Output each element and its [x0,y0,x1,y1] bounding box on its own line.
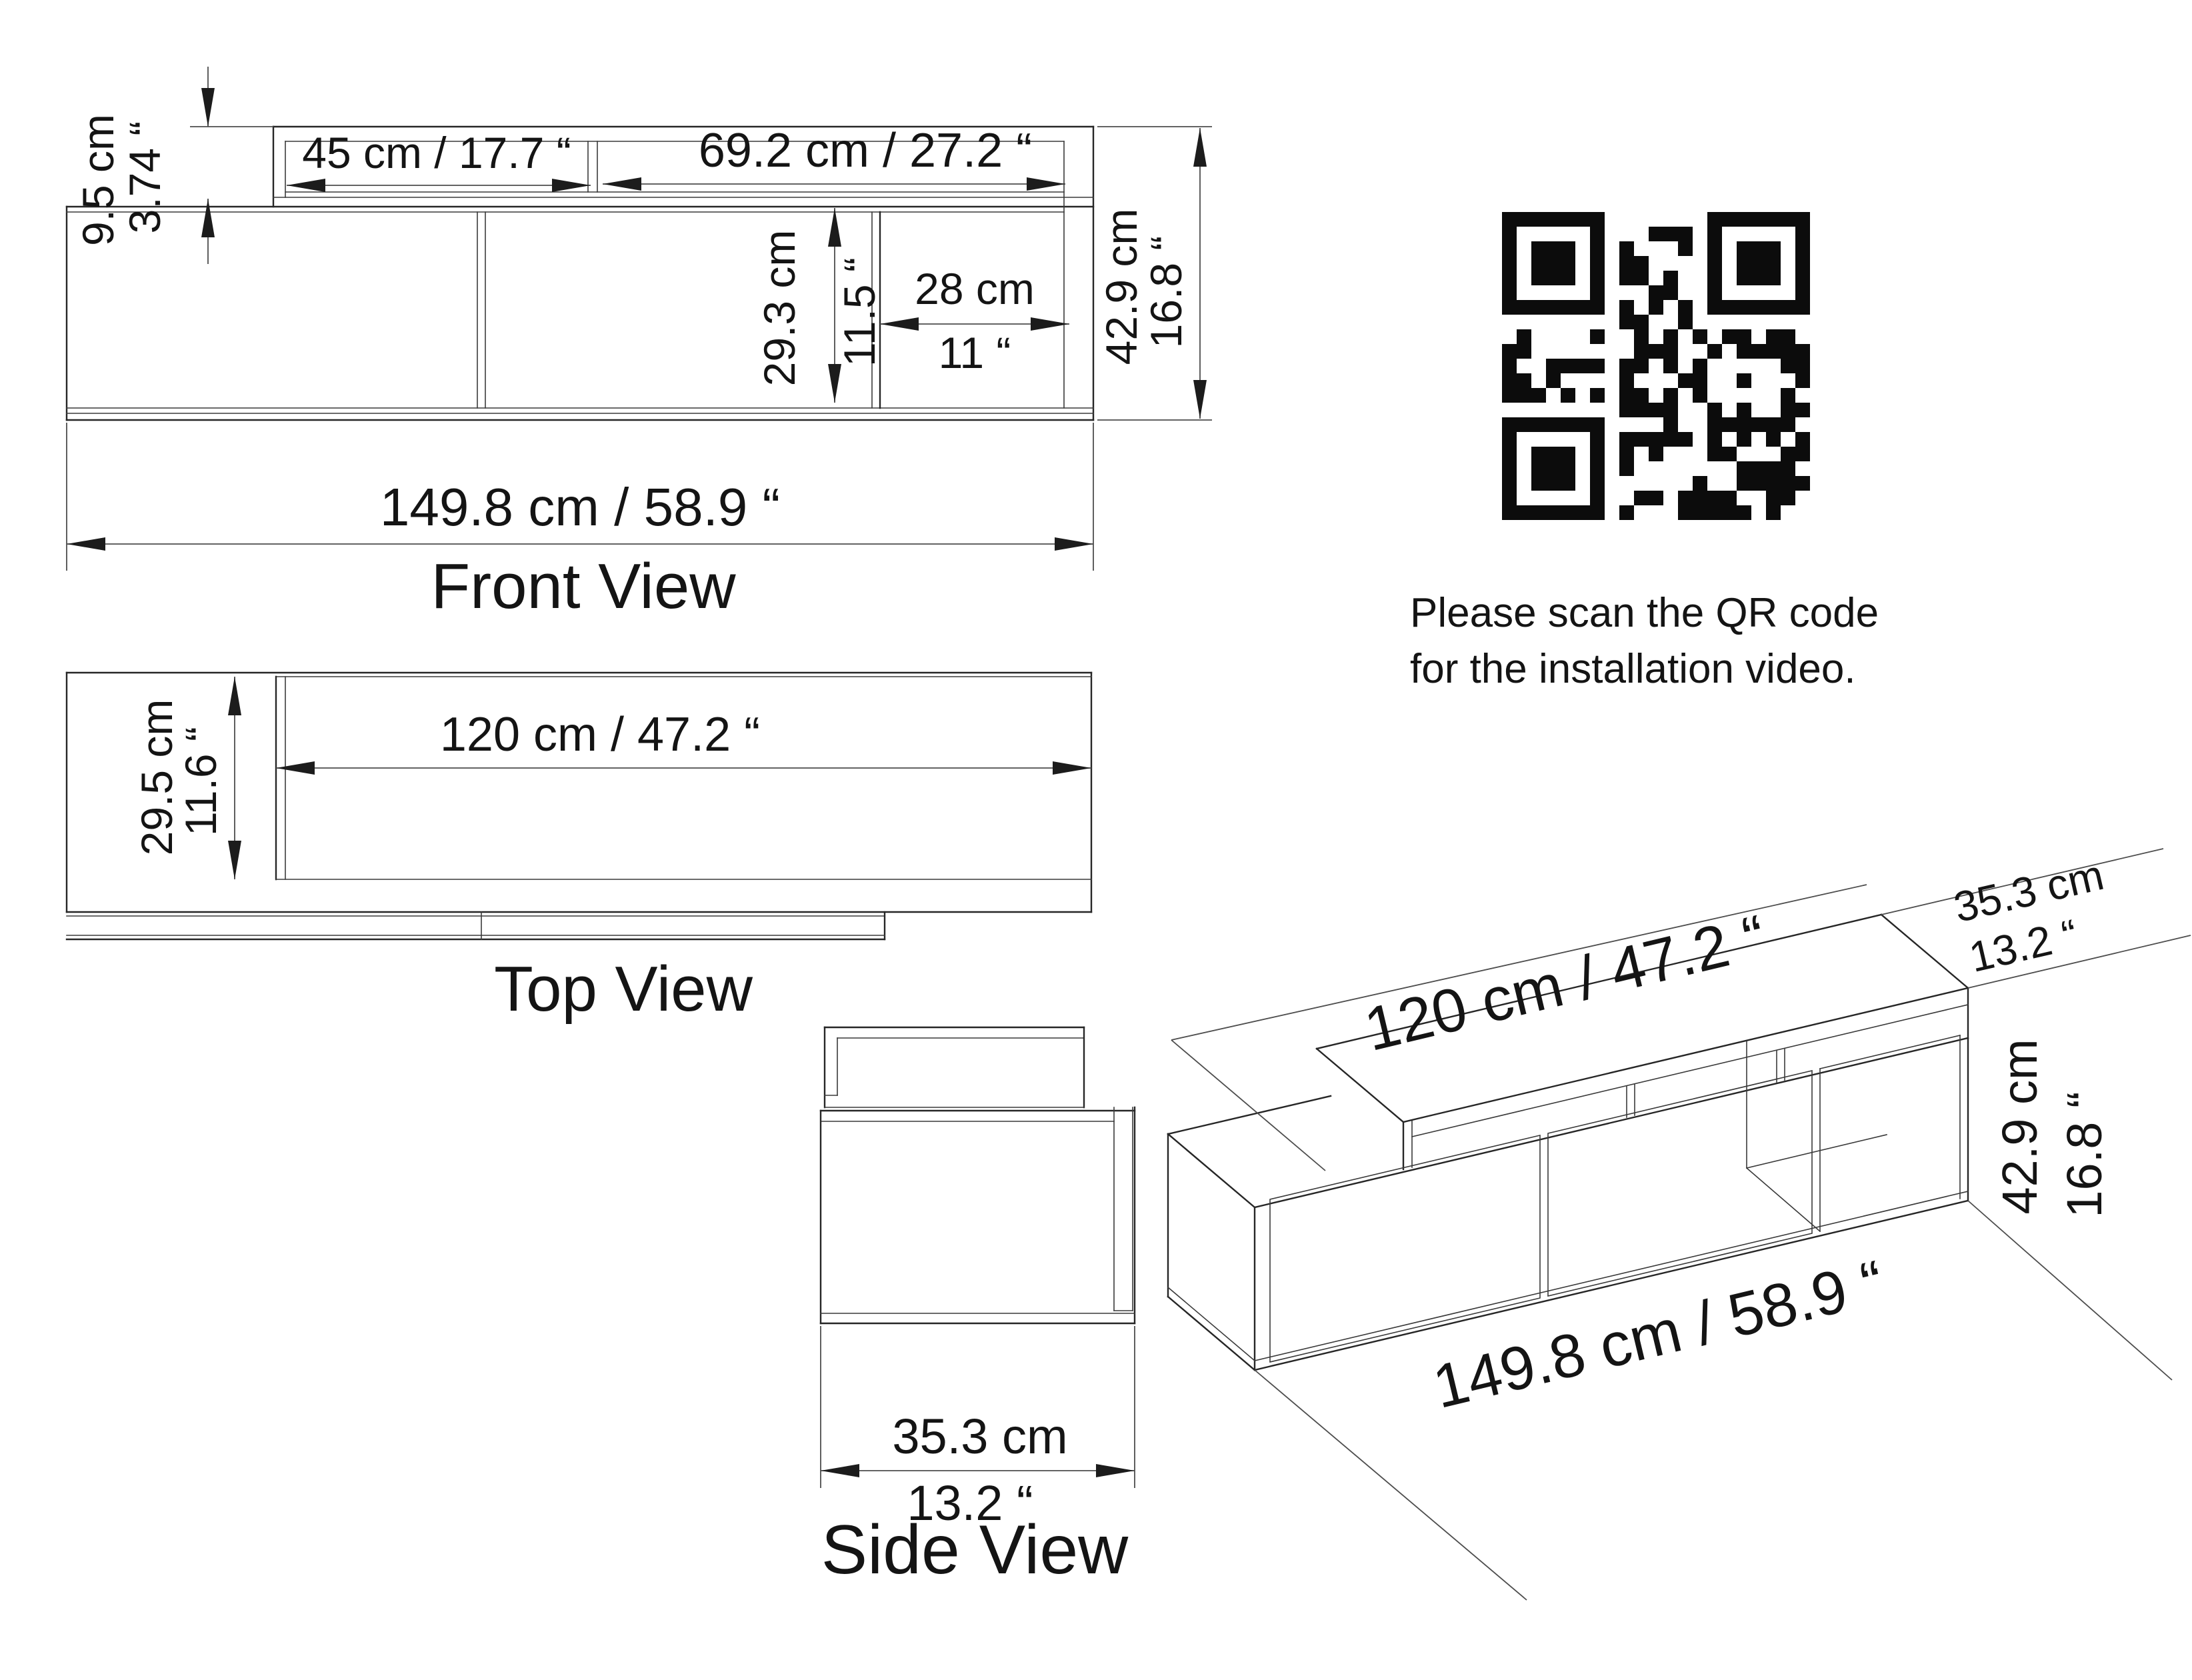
front-shelf-height-cm: 9.5 cm [73,114,123,246]
front-right-shelf-width: 69.2 cm / 27.2 “ [699,124,1032,177]
qr-caption-line1: Please scan the QR code [1410,590,1879,636]
top-view-title: Top View [494,953,753,1025]
qr-code [1502,212,1810,520]
top-dim-depth: 29.5 cm 11.6 “ [132,677,241,879]
iso-height-cm: 42.9 cm [1992,1039,2047,1214]
side-depth-cm: 35.3 cm [892,1409,1067,1464]
top-depth-cm: 29.5 cm [132,699,181,856]
front-dim-right-shelf: 69.2 cm / 27.2 “ [603,124,1065,191]
dimension-drawing: 9.5 cm 3.74 “ 45 cm / 17.7 “ 69.2 cm / 2… [0,0,2192,1680]
isometric-view: 120 cm / 47.2 “ 35.3 cm 13.2 “ 42.9 cm 1… [1168,849,2191,1600]
side-view-outline [821,1027,1135,1323]
qr-caption-line2: for the installation video. [1410,646,1856,692]
front-total-height-in: 16.8 “ [1141,236,1191,349]
front-view-title: Front View [431,551,736,622]
side-dim-depth: 35.3 cm 13.2 “ [821,1326,1135,1531]
front-dim-niche-width: 28 cm 11 “ [880,264,1069,377]
front-niche-height-cm: 29.3 cm [755,230,804,387]
top-dim-shelf-width: 120 cm / 47.2 “ [276,708,1091,775]
iso-shelf-width: 120 cm / 47.2 “ [1359,903,1772,1064]
front-niche-width-cm: 28 cm [915,264,1035,313]
iso-height-in: 16.8 “ [2057,1091,2112,1217]
front-niche-width-in: 11 “ [939,328,1011,377]
front-left-shelf-width: 45 cm / 17.7 “ [302,128,571,177]
qr-caption: Please scan the QR code for the installa… [1410,590,1879,692]
side-view-title: Side View [821,1511,1129,1589]
front-total-width: 149.8 cm / 58.9 “ [380,477,780,537]
front-dim-niche-height: 29.3 cm 11.5 “ [755,208,884,403]
top-view: 29.5 cm 11.6 “ 120 cm / 47.2 “ Top View [67,673,1091,1025]
top-shelf-width: 120 cm / 47.2 “ [440,708,760,761]
side-view: 35.3 cm 13.2 “ Side View [821,1027,1135,1589]
front-view: 9.5 cm 3.74 “ 45 cm / 17.7 “ 69.2 cm / 2… [67,67,1212,622]
top-depth-in: 11.6 “ [176,727,225,836]
front-dim-total-height: 42.9 cm 16.8 “ [1097,127,1212,420]
front-dim-total-width: 149.8 cm / 58.9 “ [67,423,1093,571]
front-dim-left-shelf: 45 cm / 17.7 “ [287,128,591,192]
front-dim-shelf-height: 9.5 cm 3.74 “ [73,67,273,264]
front-shelf-height-in: 3.74 “ [120,121,169,234]
front-total-height-cm: 42.9 cm [1097,209,1146,365]
front-niche-height-in: 11.5 “ [835,257,884,367]
